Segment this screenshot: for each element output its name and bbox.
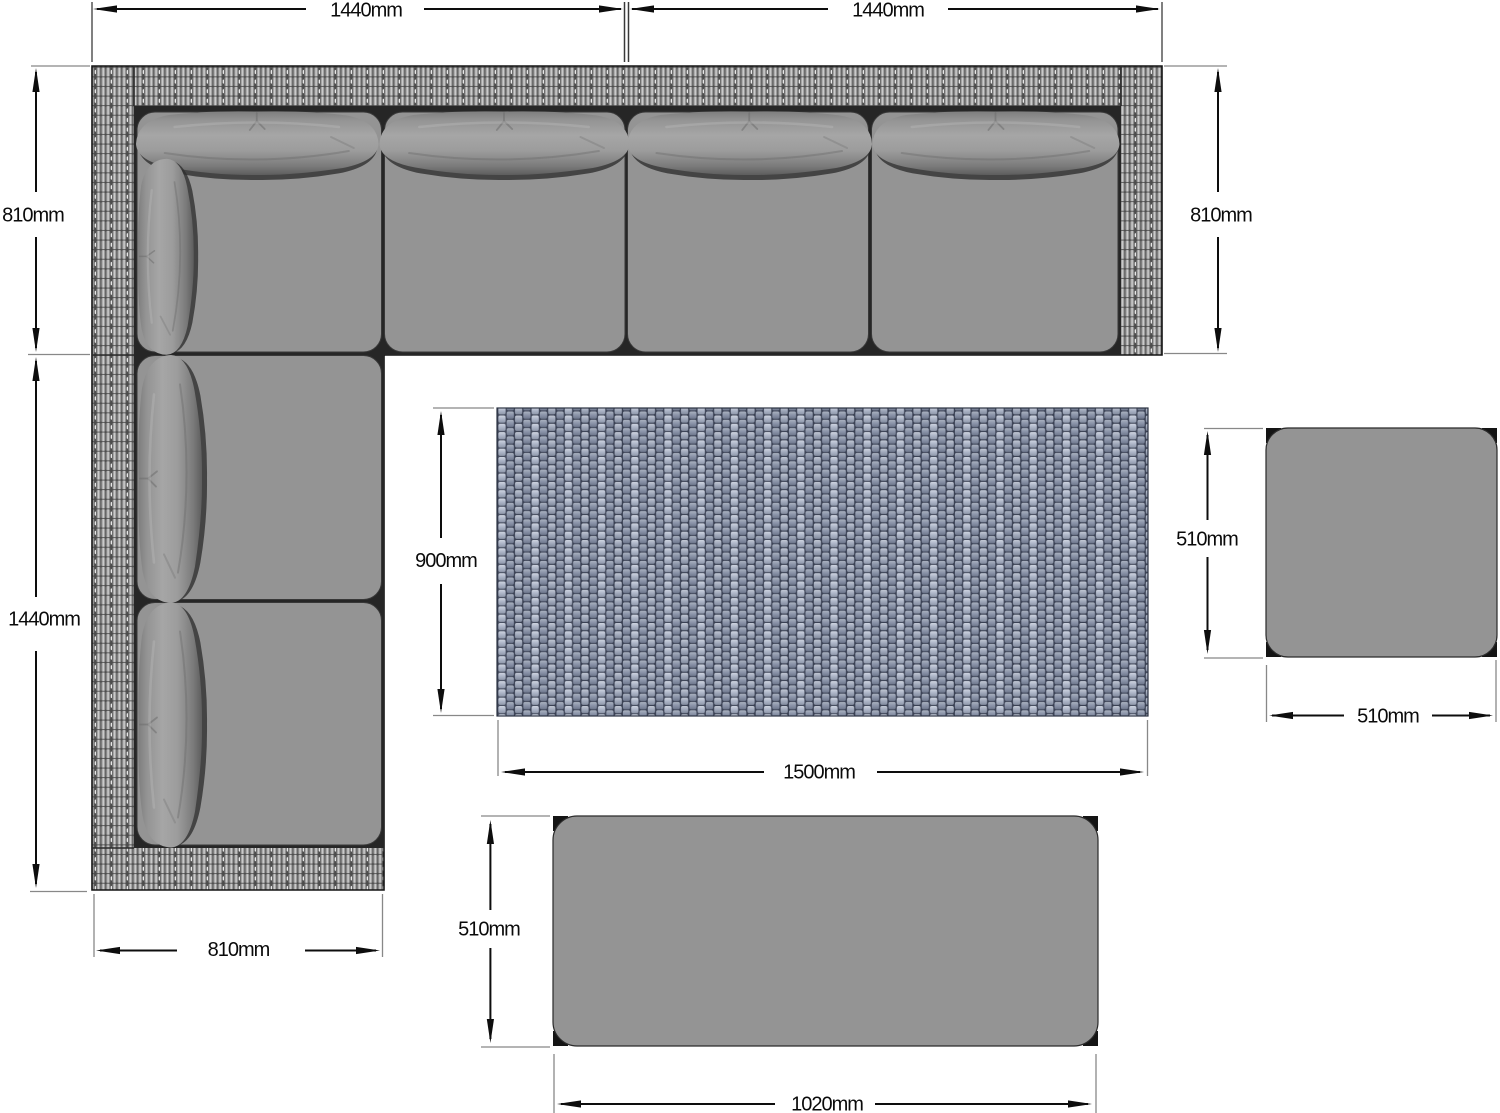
svg-text:810mm: 810mm <box>1190 205 1252 227</box>
svg-text:1020mm: 1020mm <box>791 1094 863 1113</box>
svg-text:810mm: 810mm <box>2 205 64 227</box>
svg-text:1440mm: 1440mm <box>8 609 80 631</box>
svg-text:1440mm: 1440mm <box>330 0 402 22</box>
svg-text:900mm: 900mm <box>415 550 477 572</box>
svg-text:1440mm: 1440mm <box>852 0 924 22</box>
svg-text:510mm: 510mm <box>1357 706 1419 728</box>
svg-text:510mm: 510mm <box>458 919 520 941</box>
svg-text:810mm: 810mm <box>208 939 270 961</box>
svg-text:1500mm: 1500mm <box>783 762 855 784</box>
svg-text:510mm: 510mm <box>1176 529 1238 551</box>
